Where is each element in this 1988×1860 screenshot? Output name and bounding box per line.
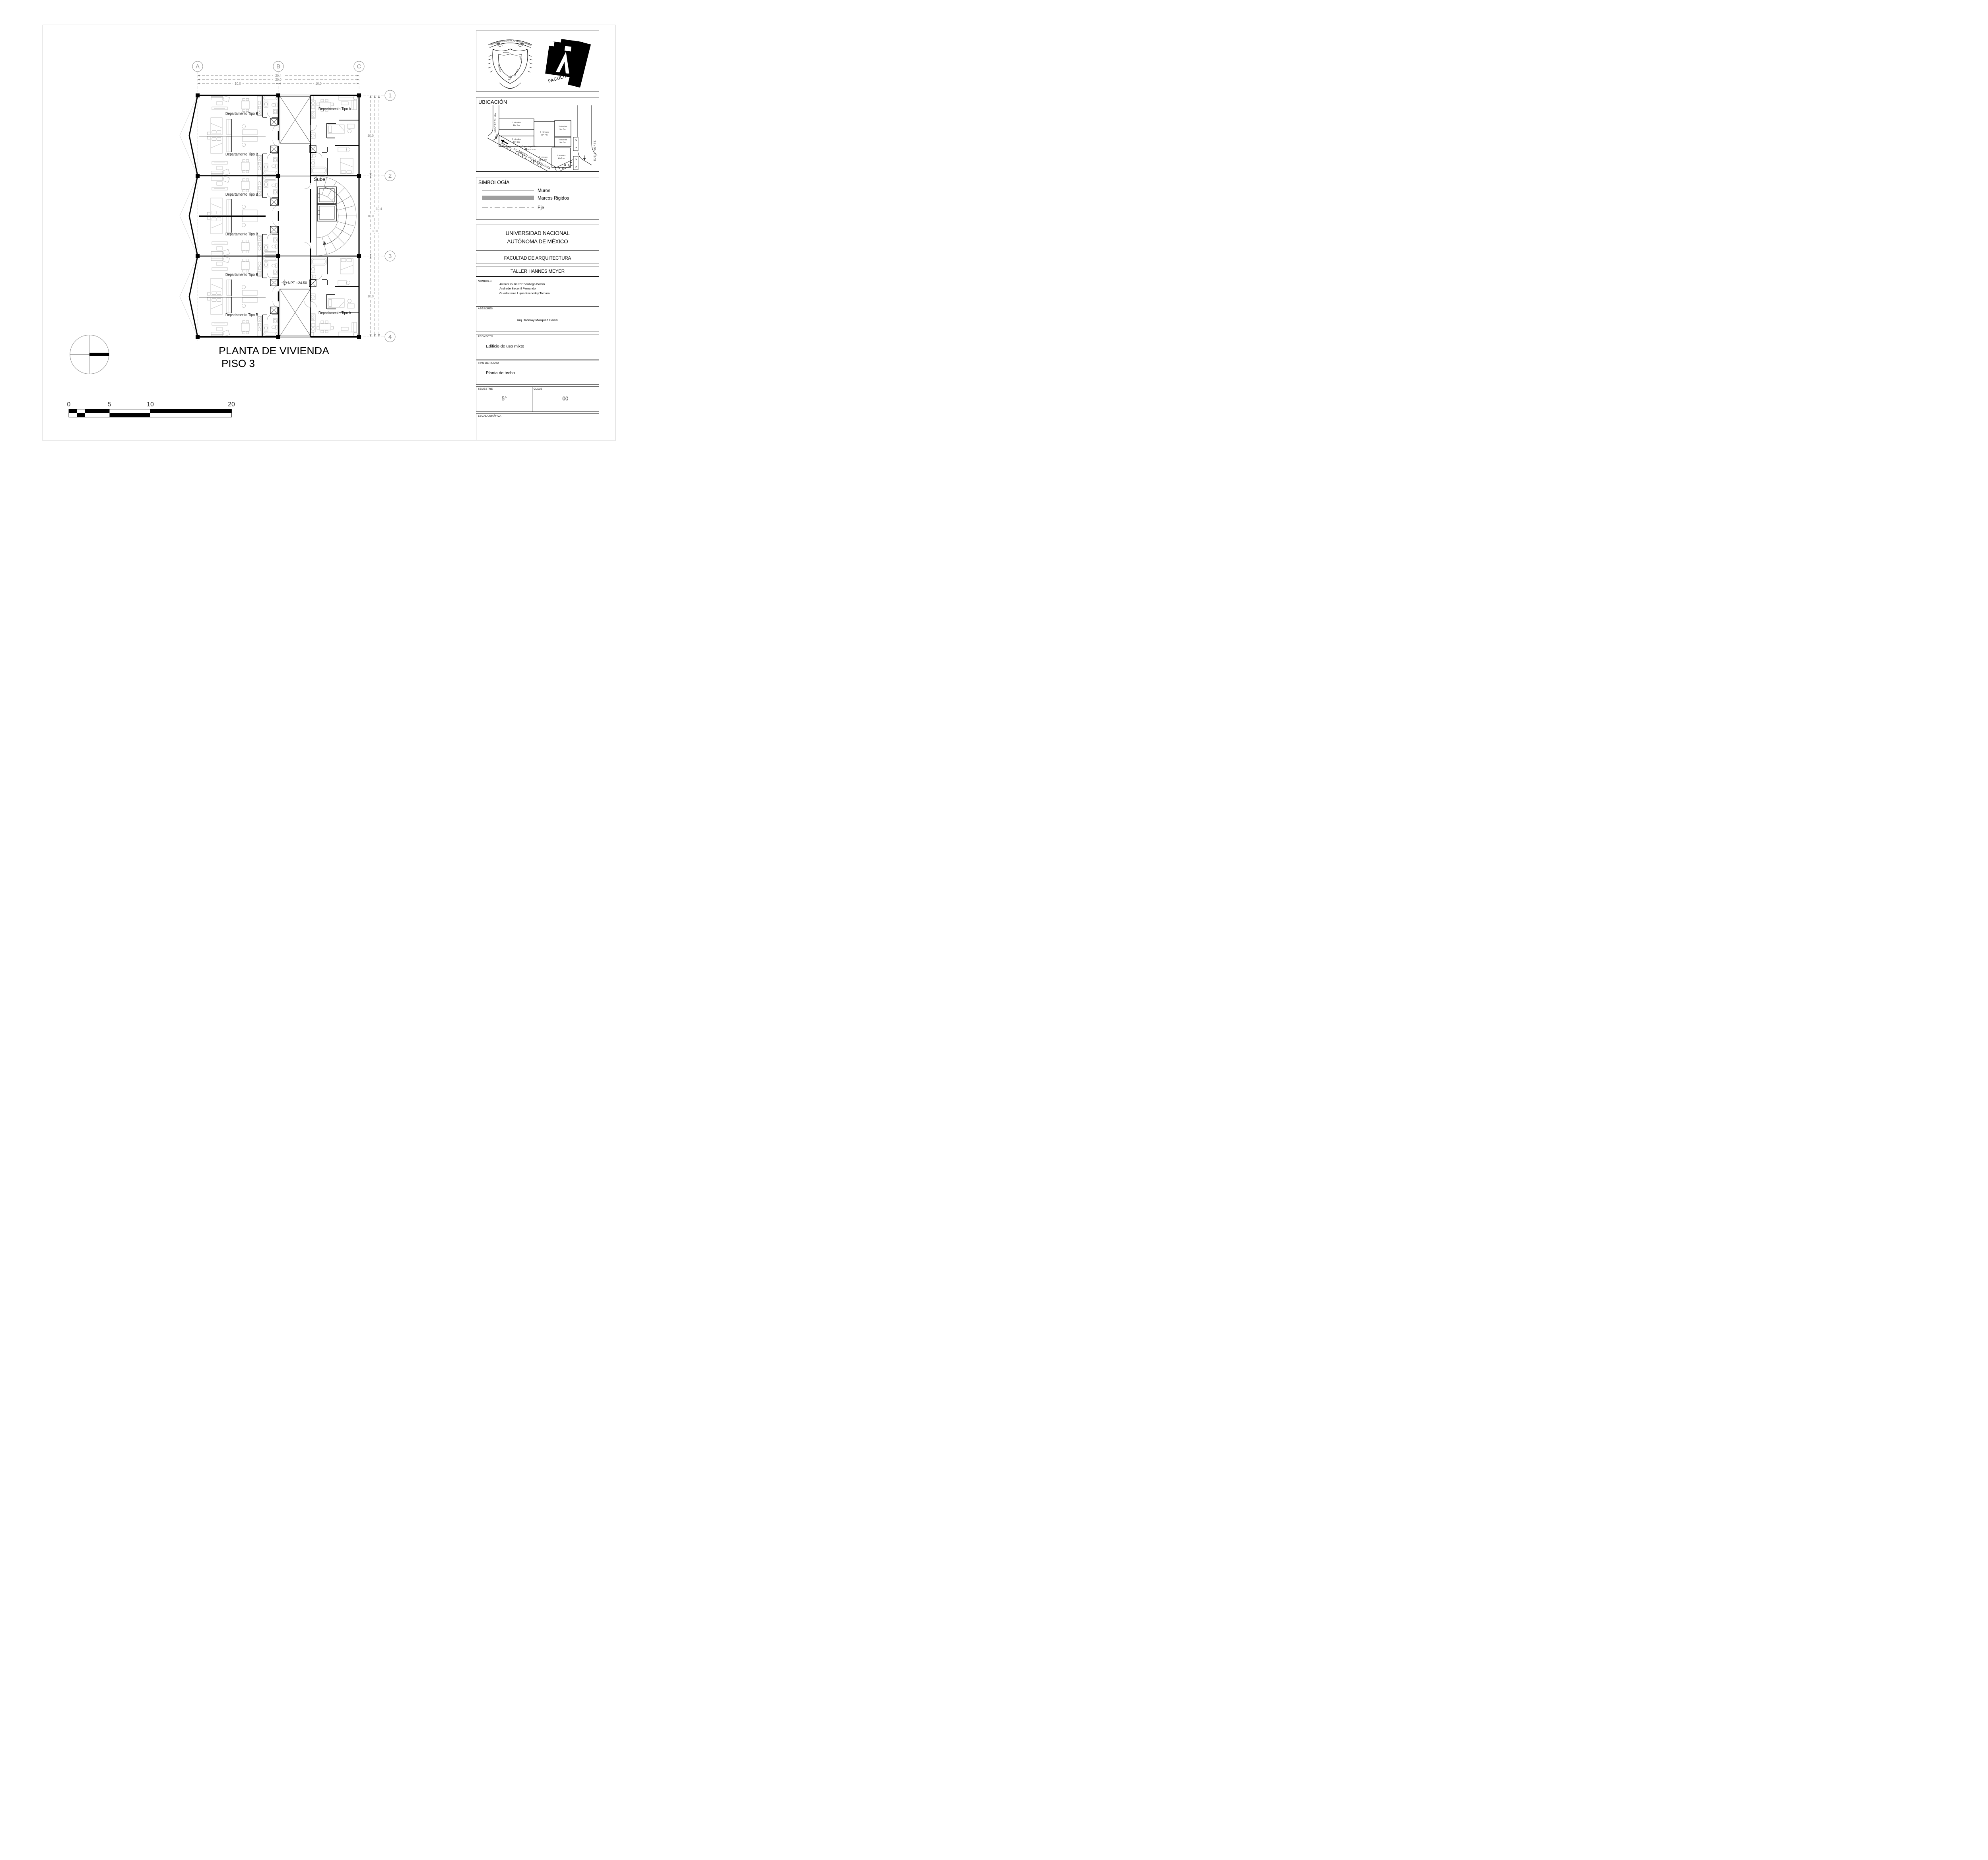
scale-20: 20 (228, 401, 235, 408)
void-shafts (280, 96, 311, 336)
level-label: NPT +24.50 (288, 281, 307, 285)
escala-label: ESCALA GRÁFICA (478, 415, 501, 417)
svg-text:H= 5m: H= 5m (513, 141, 520, 144)
grid-row-2: 2 (388, 173, 392, 179)
semestre-label: SEMESTRE (478, 388, 493, 390)
street-eje1norte: EJE 1 NORTE (594, 140, 596, 161)
stair-up-label: Sube (314, 177, 325, 182)
svg-text:H= 8m: H= 8m (559, 142, 566, 144)
graphic-scale-bar: 0 5 10 20 (67, 401, 235, 417)
grid-col-c: C (357, 63, 361, 70)
svg-text:HABLARA: HABLARA (514, 69, 519, 77)
titleblock-tipo: TIPO DE PLANO Planta de techo (476, 361, 599, 385)
unit-label-b5: Departamento Tipo B (225, 272, 258, 277)
scale-10: 10 (147, 401, 154, 408)
svg-text:EL: EL (508, 79, 511, 81)
dim-right-overall: 30.4 (376, 207, 382, 211)
svg-text:2 niveles: 2 niveles (557, 155, 566, 157)
svg-text:POR MI: POR MI (503, 52, 509, 54)
scale-5: 5 (108, 401, 111, 408)
simbologia-panel: SIMBOLOGÍA Muros Marcos Rigidos Eje (476, 177, 599, 219)
grid-col-a: A (196, 63, 200, 70)
site-map: 2 nivelesH= 5m 2 nivelesH= 5m 3 nivelesH… (487, 105, 597, 171)
svg-text:H= 7m: H= 7m (541, 134, 548, 136)
university-line1: UNIVERSIDAD NACIONAL (505, 229, 569, 238)
asesores-label: ASESORES (478, 307, 493, 310)
simbologia-title: SIMBOLOGÍA (478, 179, 510, 185)
svg-text:2 niveles: 2 niveles (512, 122, 521, 124)
titleblock-nombres: NOMBRES Alvarez Gutierrez Santiago Balam… (476, 279, 599, 304)
walls (180, 95, 359, 337)
university-line2: AUTÓNOMA DE MÉXICO (505, 238, 569, 246)
dim-right-bay1: 10.0 (367, 134, 374, 138)
unit-label-b1: Departamento Tipo B (225, 111, 258, 116)
svg-text:H=6 m: H=6 m (558, 157, 565, 160)
drawing-sheet: 20.4 20.0 10.0 10.0 10.0 10.0 10.0 30.0 … (0, 0, 658, 465)
north-indicator-icon (70, 335, 109, 374)
ubicacion-panel: UBICACIÓN (476, 97, 599, 172)
clave-value: 00 (532, 396, 599, 402)
titleblock-escala: ESCALA GRÁFICA (476, 414, 599, 440)
facultad-arquitectura-logo: FACULTAD ARQUITECTURA (544, 36, 598, 88)
advisor-name: Arq. Monroy Márquez Daniel (476, 318, 599, 322)
plan-title-line2: PISO 3 (221, 357, 255, 369)
student-name: Alvarez Gutierrez Santiago Balam (499, 282, 549, 286)
legend-marcos-label: Marcos Rigidos (538, 196, 569, 201)
titleblock-asesores: ASESORES Arq. Monroy Márquez Daniel (476, 306, 599, 332)
unit-label-b2: Departamento Tipo B (225, 152, 258, 157)
plan-type: Planta de techo (486, 371, 515, 375)
dimension-lines (198, 76, 379, 337)
proyecto-label: PROYECTO (478, 335, 493, 338)
grid-row-4: 4 (388, 334, 392, 340)
ubicacion-title: UBICACIÓN (478, 99, 507, 105)
titleblock-university: UNIVERSIDAD NACIONAL AUTÓNOMA DE MÉXICO (476, 225, 599, 251)
map-benchmark-label: B.N. ±0.00 (528, 149, 536, 151)
svg-text:2 niveles: 2 niveles (512, 138, 521, 141)
dimension-labels: 20.4 20.0 10.0 10.0 10.0 10.0 10.0 30.0 … (233, 74, 384, 298)
unit-label-b6: Departamento Tipo B (225, 313, 258, 317)
dim-right-bay2: 10.0 (367, 214, 374, 218)
svg-text:H=7.5m: H=7.5m (539, 159, 547, 161)
faculty-label: FACULTAD DE ARQUITECTURA (504, 256, 571, 261)
scale-0: 0 (67, 401, 71, 408)
student-name: Guadarrama Luján Kimberley Tamara (499, 291, 549, 295)
grid-row-3: 3 (388, 253, 392, 260)
grid-bubble-labels: A B C 1 2 3 4 (196, 63, 392, 340)
project-name: Edificio de uso mixto (486, 344, 524, 349)
grid-row-1: 1 (388, 92, 392, 99)
benchmark-icon (525, 148, 528, 151)
dim-top-right-bay: 10.0 (315, 82, 322, 85)
street-moctezuma: MOCTEZUMA (494, 113, 497, 132)
tipo-label: TIPO DE PLANO (478, 362, 499, 365)
dim-top-inner: 20.0 (275, 78, 282, 82)
stair-direction-arrow (323, 241, 327, 245)
svg-text:3 niveles: 3 niveles (559, 139, 567, 141)
door-swings (305, 183, 311, 307)
nombres-label: NOMBRES (478, 280, 491, 283)
svg-text:3 niveles: 3 niveles (540, 131, 549, 134)
titleblock-proyecto: PROYECTO Edificio de uso mixto (476, 334, 599, 359)
rigid-frame-beams (278, 95, 311, 338)
clave-label: CLAVE (534, 388, 542, 390)
unam-motto: POR MI RAZA HABLARA EL ESPIRITV (497, 52, 522, 81)
titleblock-workshop: TALLER HANNES MEYER (476, 266, 599, 277)
unam-crest-icon (488, 41, 532, 89)
student-name: Andrade Becerril Fernando (499, 286, 549, 291)
street-arrow-down-right (584, 155, 586, 160)
workshop-label: TALLER HANNES MEYER (511, 269, 565, 274)
level-marker-icon (282, 280, 288, 286)
logo-panel: UNIVERSIDAD NACIONAL AUTONOMA D MEXICO P… (476, 31, 599, 91)
dim-right-bay3: 10.0 (367, 295, 374, 298)
legend-marcos-bar (482, 196, 534, 200)
svg-text:H= 5m: H= 5m (513, 124, 520, 127)
svg-text:3 niveles: 3 niveles (559, 126, 567, 128)
dim-right-inner-total: 30.0 (372, 229, 378, 233)
svg-text:2 niveles: 2 niveles (539, 156, 547, 159)
map-space-label: Espacio público (522, 146, 538, 148)
dim-top-left-bay: 10.0 (235, 82, 241, 85)
semestre-value: 5° (476, 396, 532, 402)
plan-title-line1: PLANTA DE VIVIENDA (219, 345, 330, 357)
grid-col-b: B (276, 63, 280, 70)
unit-label-a1: Departamento Tipo A (318, 107, 351, 111)
legend-muros-label: Muros (538, 188, 550, 193)
dim-top-overall: 20.4 (275, 74, 282, 78)
svg-text:H= 8m: H= 8m (559, 128, 566, 131)
legend-eje-label: Eje (538, 206, 544, 210)
unit-label-a2: Departamento Tipo A (318, 311, 351, 315)
unit-label-b3: Departamento Tipo B (225, 192, 258, 197)
titleblock-semestre-clave: SEMESTRE 5° CLAVE 00 (476, 386, 599, 412)
unit-label-b4: Departamento Tipo B (225, 232, 258, 237)
grid-bubbles (192, 61, 395, 342)
stair-core (316, 176, 356, 256)
titleblock-faculty: FACULTAD DE ARQUITECTURA (476, 253, 599, 264)
street-arrow-down-left (495, 134, 497, 139)
